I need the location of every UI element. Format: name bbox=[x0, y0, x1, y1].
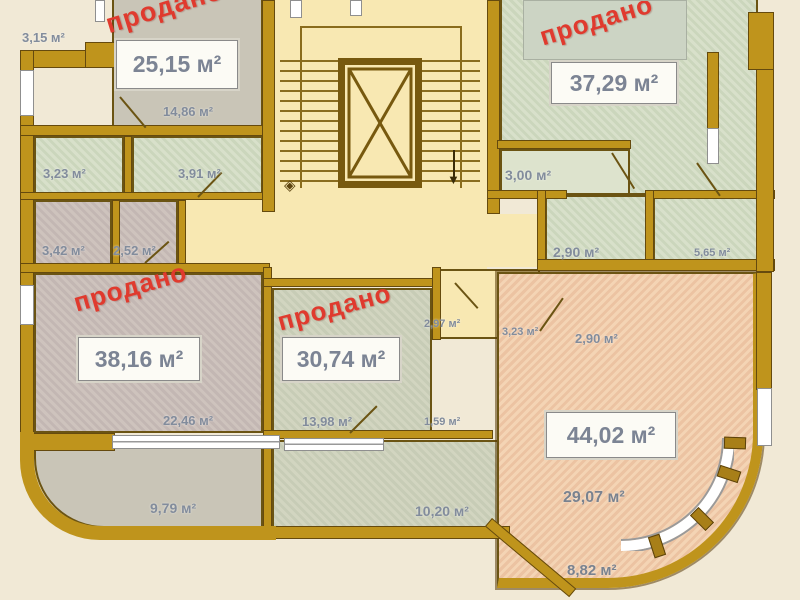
area-label-10-20: 10,20 м² bbox=[415, 503, 469, 519]
wall bbox=[487, 190, 567, 199]
room-3-23 bbox=[34, 136, 124, 194]
wall bbox=[645, 190, 654, 267]
wall bbox=[85, 42, 115, 68]
area-label-3-42: 3,42 м² bbox=[42, 243, 85, 258]
corridor bbox=[186, 192, 487, 269]
window bbox=[350, 0, 362, 16]
room-3-91 bbox=[132, 136, 263, 194]
area-box-37-29: 37,29 м² bbox=[551, 62, 677, 104]
area-label-8-82: 8,82 м² bbox=[567, 562, 616, 579]
area-label-13-98: 13,98 м² bbox=[302, 414, 352, 429]
wall bbox=[537, 190, 546, 267]
area-label-5-65: 5,65 м² bbox=[694, 247, 730, 259]
sold-stamp-patch: продано bbox=[523, 0, 687, 60]
area-label-9-79: 9,79 м² bbox=[150, 500, 196, 516]
area-label-3-15: 3,15 м² bbox=[22, 30, 65, 45]
wall bbox=[263, 267, 272, 433]
balcony-window-post bbox=[724, 437, 746, 450]
area-label-3-23-b: 3,23 м² bbox=[502, 326, 538, 338]
area-label-2-52: 2,52 м² bbox=[113, 243, 156, 258]
wall bbox=[707, 52, 719, 132]
corridor-right bbox=[487, 214, 542, 267]
area-label-3-91: 3,91 м² bbox=[178, 166, 221, 181]
area-box-38-16: 38,16 м² bbox=[78, 337, 200, 381]
wall-stairwell-right bbox=[487, 0, 500, 214]
area-label-3-23: 3,23 м² bbox=[43, 166, 86, 181]
area-label-14-86: 14,86 м² bbox=[163, 104, 213, 119]
elevator-shaft-x-icon bbox=[345, 65, 415, 181]
window bbox=[284, 438, 384, 451]
area-box-44-02: 44,02 м² bbox=[546, 412, 676, 458]
window bbox=[20, 70, 34, 116]
window bbox=[707, 128, 719, 164]
area-label-3-00: 3,00 м² bbox=[505, 167, 551, 183]
floor-plan: ◈ ▼ продано продано продано продано 25,1… bbox=[0, 0, 800, 600]
area-label-29-07: 29,07 м² bbox=[563, 489, 625, 507]
wall bbox=[497, 140, 631, 149]
sold-stamp: продано bbox=[536, 0, 657, 52]
wall bbox=[124, 136, 132, 194]
area-label-2-97: 2,97 м² bbox=[424, 318, 460, 330]
window bbox=[20, 285, 34, 325]
wall bbox=[537, 259, 775, 271]
stair-arrow-down-icon: ▼ bbox=[447, 172, 460, 187]
wall bbox=[178, 200, 186, 265]
area-label-2-90-b: 2,90 м² bbox=[575, 331, 618, 346]
area-box-30-74: 30,74 м² bbox=[282, 337, 400, 381]
window bbox=[290, 0, 302, 18]
area-box-25-15: 25,15 м² bbox=[116, 40, 238, 89]
wall-outer-right bbox=[756, 272, 772, 390]
wall-pillar bbox=[748, 12, 774, 70]
wall bbox=[20, 192, 266, 200]
window bbox=[757, 388, 772, 446]
wall-stairwell-left bbox=[262, 0, 275, 212]
window bbox=[112, 435, 280, 449]
stair-start-diamond-icon: ◈ bbox=[284, 176, 296, 194]
area-label-2-90-a: 2,90 м² bbox=[553, 244, 599, 260]
area-label-1-59: 1,59 м² bbox=[424, 416, 460, 428]
area-label-22-46: 22,46 м² bbox=[163, 413, 213, 428]
elevator-shaft bbox=[338, 58, 422, 188]
